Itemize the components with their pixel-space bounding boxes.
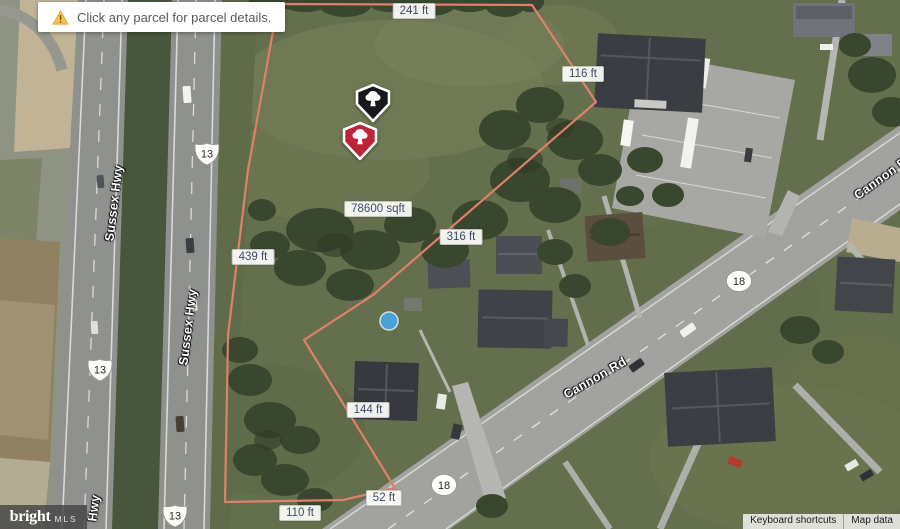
parcel-details-banner: Click any parcel for parcel details. bbox=[38, 2, 285, 32]
brightmls-logo: bright MLS bbox=[0, 505, 87, 529]
warning-icon bbox=[52, 10, 69, 25]
parcel-dimension-label: 52 ft bbox=[366, 490, 402, 506]
banner-text: Click any parcel for parcel details. bbox=[77, 10, 271, 25]
svg-text:13: 13 bbox=[201, 149, 213, 161]
keyboard-shortcuts-button[interactable]: Keyboard shortcuts bbox=[743, 514, 843, 529]
svg-text:18: 18 bbox=[733, 276, 745, 288]
parcel-dimension-label: 144 ft bbox=[347, 402, 390, 418]
map-data-label: Map data bbox=[843, 514, 900, 529]
svg-text:13: 13 bbox=[169, 511, 181, 523]
map-attribution: Keyboard shortcuts Map data bbox=[743, 514, 900, 529]
state-route-18-shield: 18 bbox=[430, 473, 458, 497]
parcel-dimension-label: 439 ft bbox=[232, 249, 275, 265]
parcel-dimension-label: 116 ft bbox=[562, 66, 604, 82]
satellite-imagery[interactable] bbox=[0, 0, 900, 529]
logo-brand-text: bright bbox=[10, 509, 51, 525]
us-route-13-shield: 13 bbox=[160, 503, 190, 529]
map-canvas[interactable]: Sussex Hwy Sussex Hwy Hwy Cannon Rd Cann… bbox=[0, 0, 900, 529]
svg-text:13: 13 bbox=[94, 365, 106, 377]
svg-text:18: 18 bbox=[438, 480, 450, 492]
us-route-13-shield: 13 bbox=[85, 357, 115, 383]
parcel-area-label: 78600 sqft bbox=[344, 201, 412, 217]
parcel-marker-red[interactable] bbox=[342, 121, 378, 161]
state-route-18-shield: 18 bbox=[725, 269, 753, 293]
parcel-dimension-label: 110 ft bbox=[279, 505, 321, 521]
parcel-dimension-label: 241 ft bbox=[393, 3, 436, 19]
logo-mls-text: MLS bbox=[54, 514, 77, 524]
us-route-13-shield: 13 bbox=[192, 141, 222, 167]
parcel-dimension-label: 316 ft bbox=[440, 229, 483, 245]
parcel-marker-black[interactable] bbox=[355, 83, 391, 123]
